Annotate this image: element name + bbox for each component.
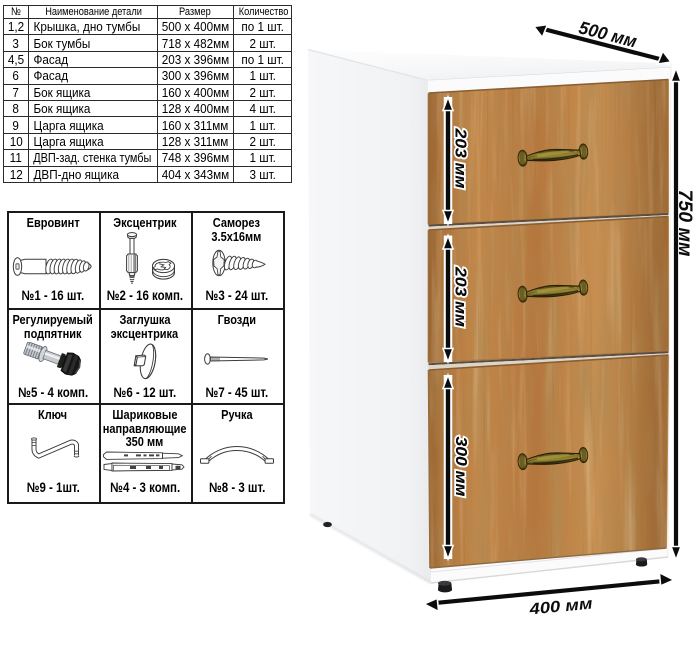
- svg-text:400 мм: 400 мм: [528, 595, 594, 618]
- svg-text:750 мм: 750 мм: [674, 190, 696, 258]
- svg-text:203 мм: 203 мм: [451, 127, 468, 189]
- svg-text:300 мм: 300 мм: [452, 437, 469, 498]
- svg-text:203 мм: 203 мм: [451, 266, 468, 328]
